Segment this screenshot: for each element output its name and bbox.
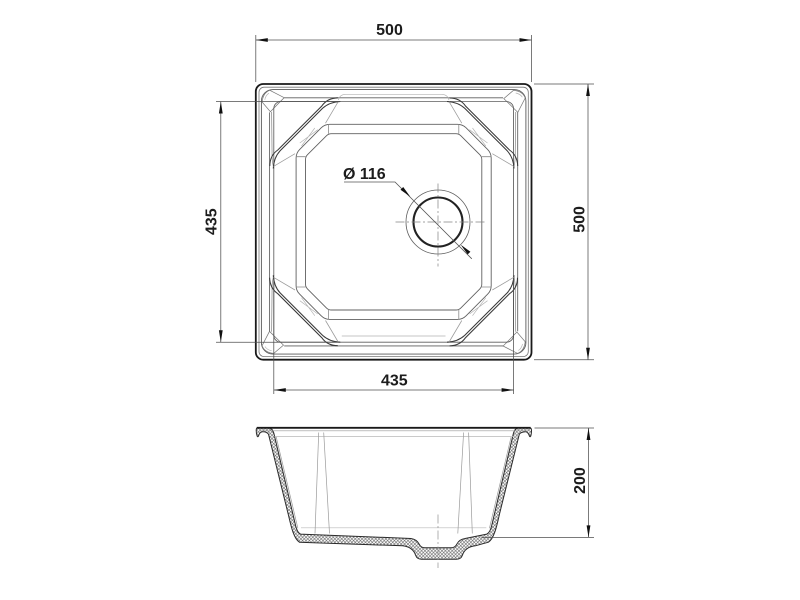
svg-text:200: 200 <box>572 467 589 494</box>
svg-text:435: 435 <box>381 373 408 390</box>
svg-text:500: 500 <box>376 22 403 39</box>
svg-text:500: 500 <box>571 206 588 233</box>
svg-text:Ø 116: Ø 116 <box>343 166 386 183</box>
svg-text:435: 435 <box>204 208 221 235</box>
